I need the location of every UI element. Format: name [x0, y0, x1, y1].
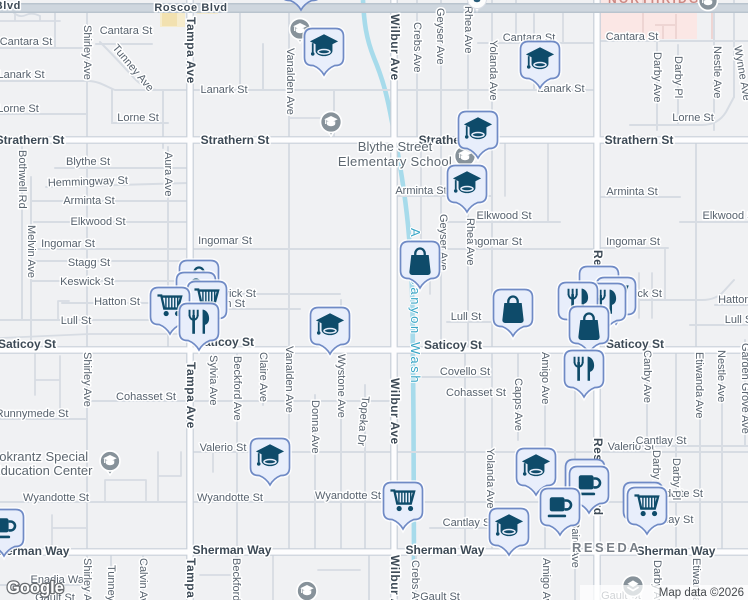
- svg-text:Nestle Ave: Nestle Ave: [711, 46, 723, 98]
- svg-text:Lull St: Lull St: [725, 314, 748, 326]
- svg-text:Yolanda Ave: Yolanda Ave: [487, 40, 499, 101]
- svg-text:Ingomar St: Ingomar St: [41, 238, 95, 250]
- svg-text:Wyandotte St: Wyandotte St: [315, 490, 381, 502]
- svg-text:Garden Grove Ave: Garden Grove Ave: [739, 343, 748, 434]
- svg-text:Covello St: Covello St: [440, 366, 490, 378]
- svg-text:Crebs Ave: Crebs Ave: [411, 22, 423, 73]
- svg-text:Bothwell Rd: Bothwell Rd: [16, 150, 28, 209]
- svg-text:Lokrantz Special: Lokrantz Special: [0, 449, 88, 464]
- svg-text:Lull St: Lull St: [451, 311, 482, 323]
- svg-text:Cantara St: Cantara St: [100, 25, 153, 37]
- svg-text:Saticoy St: Saticoy St: [424, 338, 482, 352]
- svg-text:Map data ©2026: Map data ©2026: [659, 587, 744, 599]
- svg-text:Ingomar St: Ingomar St: [198, 235, 252, 247]
- svg-text:Arminta St: Arminta St: [606, 186, 657, 198]
- svg-text:Hatton St: Hatton St: [94, 296, 140, 308]
- svg-text:Lanark St: Lanark St: [0, 69, 45, 81]
- svg-text:Lorne St: Lorne St: [0, 103, 39, 115]
- svg-text:Google: Google: [7, 579, 64, 597]
- svg-text:Cantara St: Cantara St: [606, 31, 659, 43]
- svg-text:Rhea Ave: Rhea Ave: [464, 218, 476, 266]
- svg-text:Sherman Way: Sherman Way: [406, 543, 485, 557]
- svg-text:Vanalden Ave: Vanalden Ave: [283, 346, 295, 413]
- svg-text:Elkwood St: Elkwood St: [70, 216, 125, 228]
- svg-text:Sherman Way: Sherman Way: [193, 543, 272, 557]
- svg-text:Wyandotte St: Wyandotte St: [23, 492, 89, 504]
- svg-text:Gault St: Gault St: [420, 591, 460, 600]
- svg-text:Aura Ave: Aura Ave: [162, 152, 174, 196]
- svg-text:Blythe Street: Blythe Street: [358, 139, 433, 154]
- svg-text:Wystone Ave: Wystone Ave: [335, 354, 347, 418]
- svg-text:Sylvia Ave: Sylvia Ave: [207, 355, 219, 406]
- svg-text:Lorne St: Lorne St: [117, 112, 159, 124]
- svg-text:Crebs Ave: Crebs Ave: [409, 560, 421, 600]
- svg-text:Roscoe Blvd: Roscoe Blvd: [0, 0, 21, 12]
- svg-text:Elkwood St: Elkwood St: [702, 210, 748, 222]
- svg-text:Cantlay St: Cantlay St: [636, 435, 687, 447]
- svg-text:Rhea Ave: Rhea Ave: [462, 6, 474, 54]
- svg-text:Lanark St: Lanark St: [200, 84, 247, 96]
- svg-text:Tampa Ave: Tampa Ave: [184, 558, 198, 600]
- svg-text:Wilbur Ave: Wilbur Ave: [388, 14, 402, 81]
- svg-text:Arminta St: Arminta St: [63, 195, 114, 207]
- svg-text:Shirley Ave: Shirley Ave: [81, 352, 93, 407]
- svg-text:Runnymede St: Runnymede St: [0, 408, 68, 420]
- svg-text:Lull St: Lull St: [61, 315, 92, 327]
- svg-text:Shirley Ave: Shirley Ave: [81, 558, 93, 600]
- svg-text:Cohasset St: Cohasset St: [446, 387, 506, 399]
- svg-text:Beckford Ave: Beckford Ave: [231, 356, 243, 421]
- svg-text:RESEDA: RESEDA: [572, 540, 641, 555]
- svg-text:Wilbur Ave: Wilbur Ave: [388, 555, 402, 600]
- svg-text:Canby Ave: Canby Ave: [641, 350, 653, 403]
- svg-text:Elementary School: Elementary School: [338, 154, 452, 169]
- svg-text:Sherman Way: Sherman Way: [637, 544, 716, 558]
- svg-text:Melvin Ave: Melvin Ave: [25, 225, 37, 278]
- svg-text:Donna Ave: Donna Ave: [309, 400, 321, 454]
- svg-text:Cantlay St: Cantlay St: [443, 517, 494, 529]
- svg-text:Wyandotte St: Wyandotte St: [197, 492, 263, 504]
- svg-text:Strathern St: Strathern St: [0, 133, 64, 147]
- svg-text:Vanalden Ave: Vanalden Ave: [284, 48, 296, 115]
- svg-text:Arminta St: Arminta St: [395, 185, 446, 197]
- svg-text:Tampa Ave: Tampa Ave: [184, 362, 198, 429]
- svg-text:Hatton St: Hatton St: [718, 294, 748, 306]
- svg-text:Strathern St: Strathern St: [605, 133, 674, 147]
- svg-text:Tunney Ave: Tunney Ave: [105, 565, 117, 600]
- svg-text:Blythe St: Blythe St: [66, 156, 110, 168]
- svg-text:Shirley Ave: Shirley Ave: [81, 25, 93, 80]
- svg-text:Saticoy St: Saticoy St: [0, 337, 56, 351]
- svg-text:Saticoy St: Saticoy St: [606, 337, 664, 351]
- svg-text:Capps Ave: Capps Ave: [512, 378, 524, 431]
- svg-text:Amigo Ave: Amigo Ave: [540, 558, 552, 600]
- svg-text:Darby Ave: Darby Ave: [651, 52, 663, 103]
- svg-text:Nestle Ave: Nestle Ave: [715, 350, 727, 402]
- svg-text:Darby Pl: Darby Pl: [670, 458, 682, 500]
- svg-text:Cantara St: Cantara St: [0, 36, 52, 48]
- svg-text:Darby Pl: Darby Pl: [672, 56, 684, 98]
- svg-text:Stagg St: Stagg St: [68, 257, 110, 269]
- svg-text:Strathern St: Strathern St: [201, 133, 270, 147]
- svg-text:NORTHRIDGE: NORTHRIDGE: [608, 0, 711, 6]
- svg-text:Keswick St: Keswick St: [60, 276, 114, 288]
- svg-text:Education Center: Education Center: [0, 463, 93, 478]
- svg-text:Calvin Ave: Calvin Ave: [137, 558, 149, 600]
- svg-text:Claire Ave: Claire Ave: [257, 352, 269, 402]
- svg-text:Beckford Ave: Beckford Ave: [230, 558, 242, 600]
- svg-text:Tampa Ave: Tampa Ave: [184, 17, 198, 84]
- svg-text:Ingomar St: Ingomar St: [606, 236, 660, 248]
- svg-text:Cohasset St: Cohasset St: [116, 391, 176, 403]
- svg-text:Wilbur Ave: Wilbur Ave: [388, 378, 402, 445]
- svg-text:Etiwanda Ave: Etiwanda Ave: [693, 352, 705, 418]
- svg-text:Roscoe Blvd: Roscoe Blvd: [154, 2, 227, 14]
- svg-text:Yolanda Ave: Yolanda Ave: [484, 448, 496, 509]
- svg-text:Geyser Ave: Geyser Ave: [434, 8, 446, 65]
- svg-text:Elkwood St: Elkwood St: [476, 210, 531, 222]
- svg-text:Valerio St: Valerio St: [200, 442, 247, 454]
- svg-text:Amigo Ave: Amigo Ave: [539, 352, 551, 404]
- svg-text:Lorne St: Lorne St: [672, 112, 714, 124]
